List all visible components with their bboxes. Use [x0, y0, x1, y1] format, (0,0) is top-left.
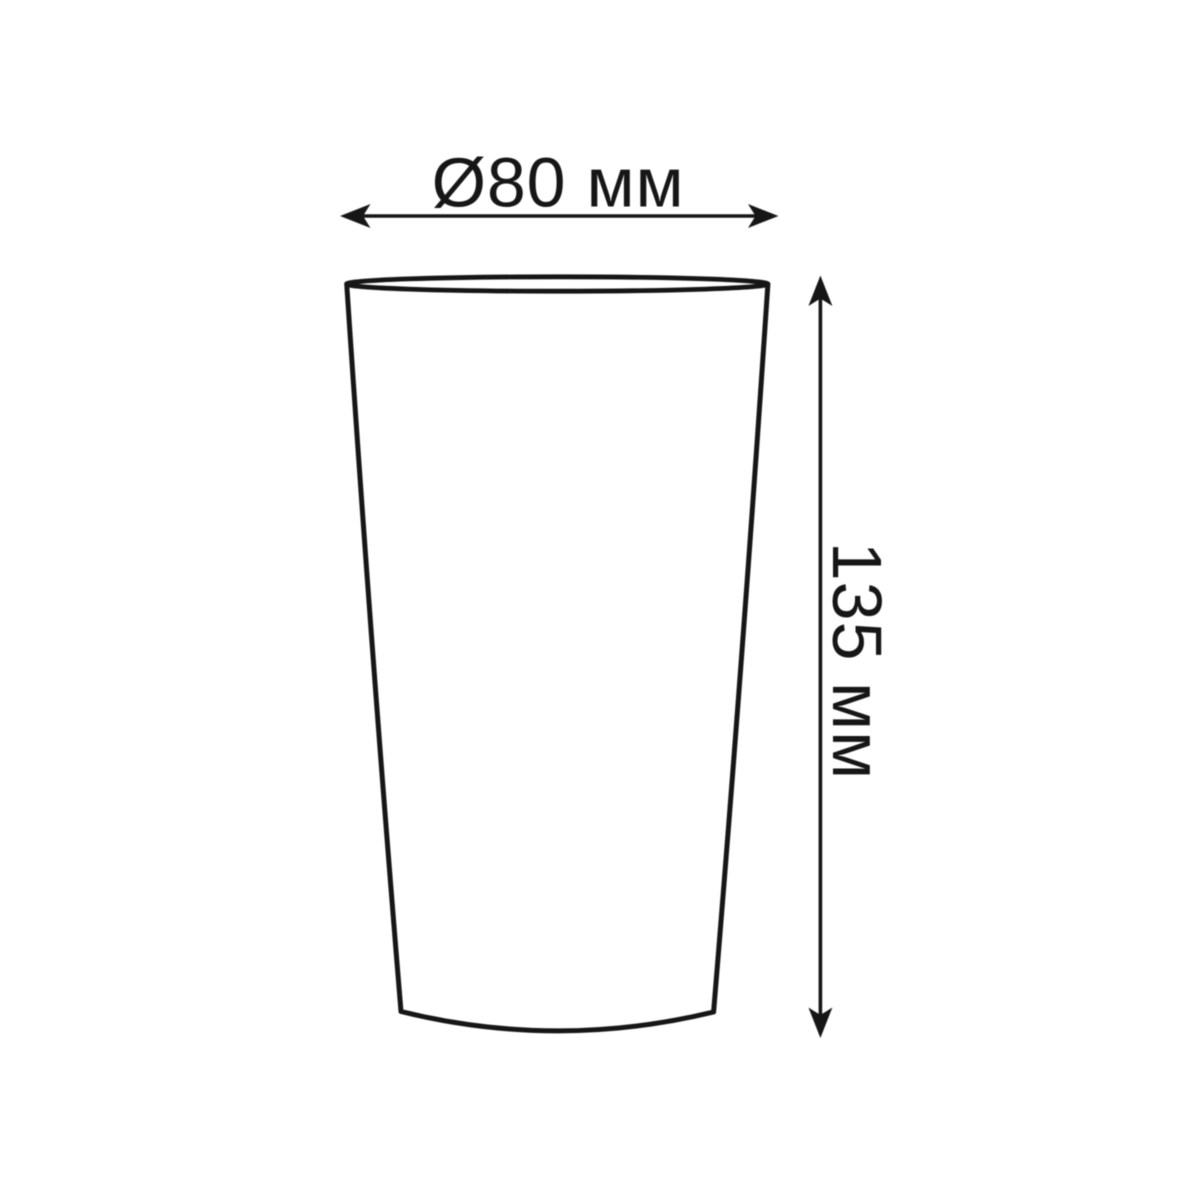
svg-text:135 мм: 135 мм	[818, 542, 896, 781]
svg-text:Ø80 мм: Ø80 мм	[432, 144, 685, 222]
